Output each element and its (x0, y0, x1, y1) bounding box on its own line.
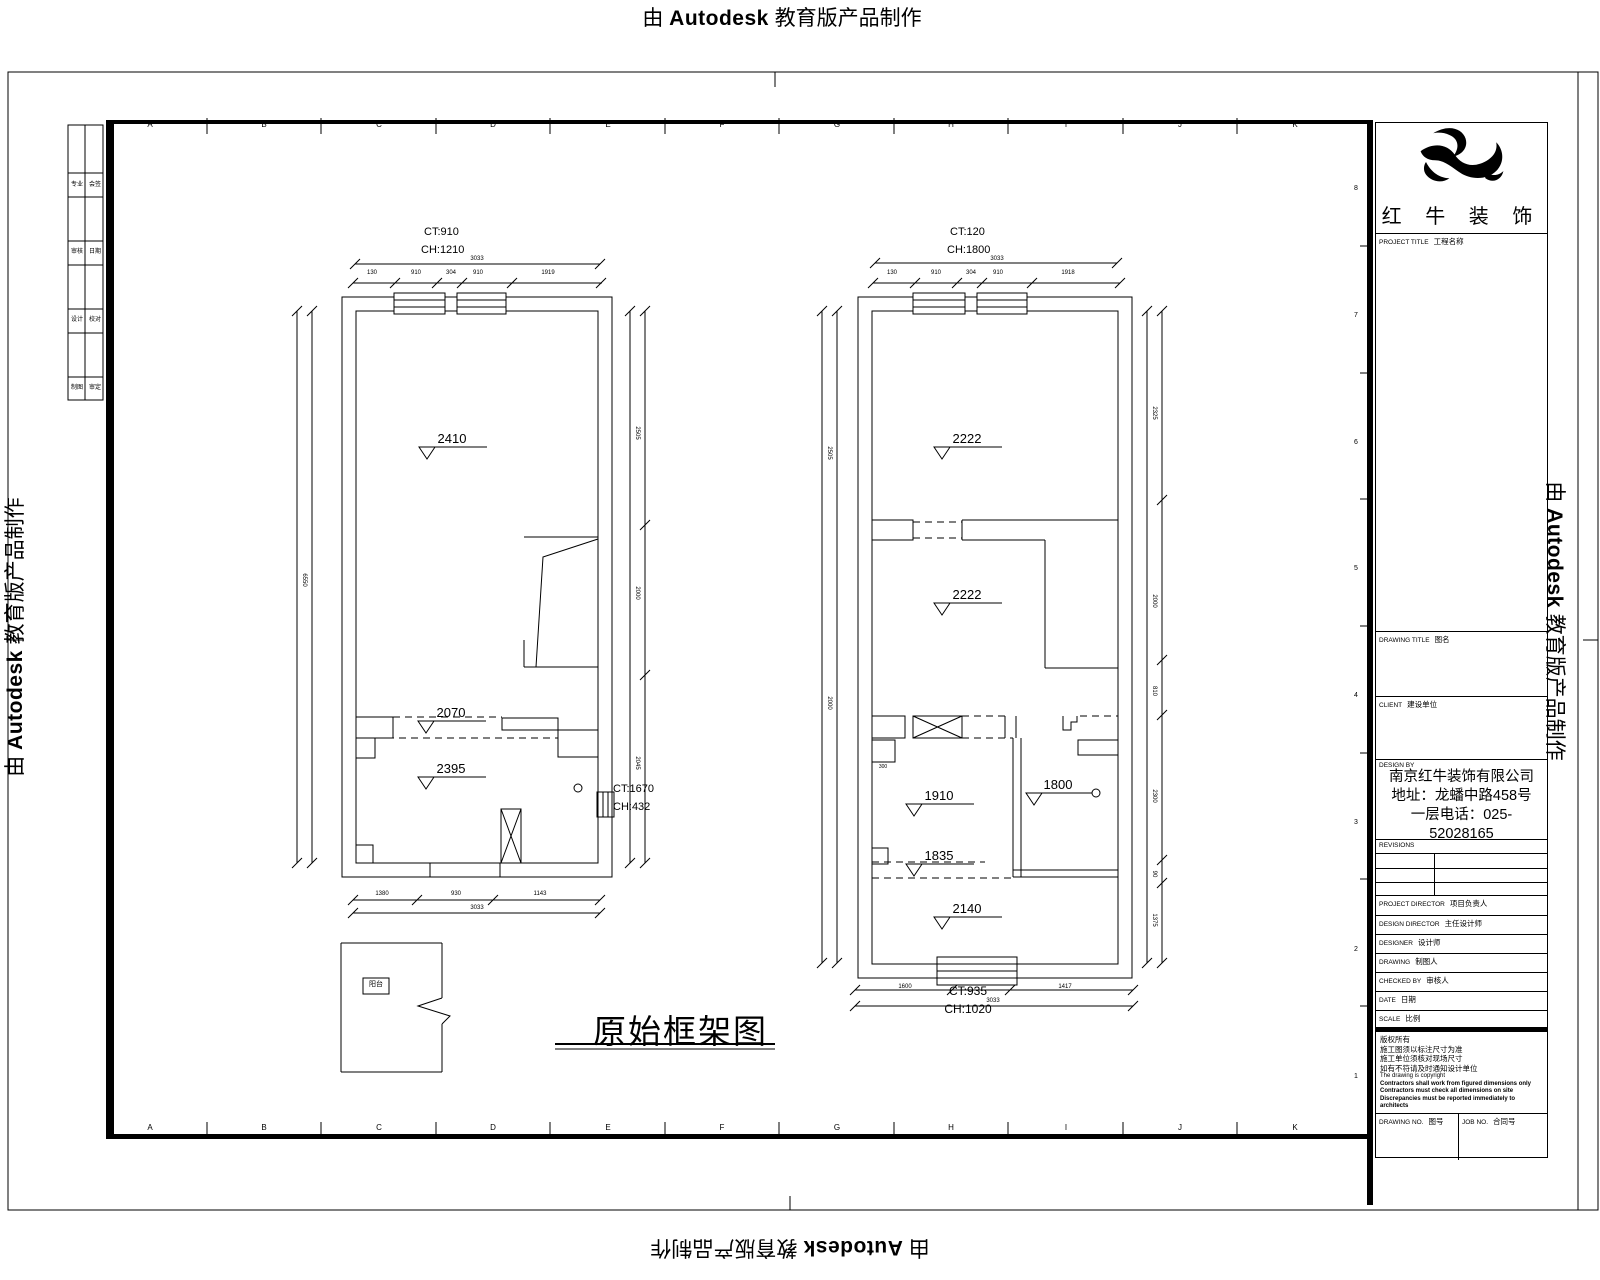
col-f-top: F (720, 121, 725, 129)
dim: 130 (367, 270, 377, 276)
col-a-top: A (147, 121, 152, 129)
row-checked-by: CHECKED BY审核人 (1376, 972, 1547, 991)
dim-total: 3033 (986, 998, 999, 1004)
right-plan (817, 258, 1167, 1011)
col-g-bot: G (834, 1124, 840, 1132)
row-drawing: DRAWING制图人 (1376, 953, 1547, 972)
col-k-top: K (1292, 121, 1297, 129)
elev-2410: 2410 (438, 432, 467, 445)
project-label-cn: 工程名称 (1434, 237, 1464, 246)
strip-cell: 日期 (89, 249, 101, 255)
dim: 1143 (534, 891, 547, 897)
col-b-bot: B (261, 1124, 266, 1132)
dim: 910 (993, 270, 1003, 276)
elev-2222-a: 2222 (953, 432, 982, 445)
elev-2070: 2070 (437, 706, 466, 719)
row-date: DATE日期 (1376, 991, 1547, 1010)
col-h-bot: H (948, 1124, 954, 1132)
sheet-frame (8, 72, 1598, 1210)
dim: 910 (473, 270, 483, 276)
strip-cell: 校对 (89, 317, 101, 323)
project-title-section: PROJECT TITLE工程名称 (1376, 233, 1547, 632)
design-section: DESIGN BY 南京红牛装饰有限公司地址：龙蟠中路458号一层电话：025-… (1376, 759, 1547, 840)
cad-sheet: { "watermark": {"prefix": "由", "brand": … (0, 0, 1600, 1280)
elev-1835: 1835 (925, 849, 954, 862)
col-a-bot: A (147, 1124, 152, 1132)
bull-logo-icon (1402, 126, 1522, 198)
strip-cell: 制图 (71, 385, 83, 391)
strip-cell: 会签 (89, 182, 101, 188)
dim: 910 (411, 270, 421, 276)
row-designer: DESIGNER设计师 (1376, 934, 1547, 953)
drawing-title-section: DRAWING TITLE图名 (1376, 631, 1547, 697)
row-4: 4 (1354, 692, 1358, 699)
dim-v: 2505 (826, 446, 832, 459)
col-h-top: H (948, 121, 954, 129)
dim-total: 3033 (470, 905, 483, 911)
strip-cell: 专业 (71, 182, 83, 188)
row-7: 7 (1354, 312, 1358, 319)
row-6: 6 (1354, 439, 1358, 446)
dim: 930 (451, 891, 461, 897)
dim-v: 2325 (1151, 406, 1157, 419)
strip-cell: 审定 (89, 385, 101, 391)
dim: 1919 (541, 270, 554, 276)
dim-lines-left (297, 264, 645, 913)
client-section: CLIENT建设单位 (1376, 696, 1547, 760)
row-design-director: DESIGN DIRECTOR主任设计师 (1376, 915, 1547, 934)
dim-v: 2300 (1151, 789, 1157, 802)
row-2: 2 (1354, 946, 1358, 953)
revisions-table (1376, 853, 1547, 896)
dim-v: 2000 (634, 586, 640, 599)
elev-2140: 2140 (953, 902, 982, 915)
col-e-top: E (605, 121, 610, 129)
dim-v: 2045 (634, 756, 640, 769)
elev-1800: 1800 (1044, 778, 1073, 791)
col-j-bot: J (1178, 1124, 1182, 1132)
ct-left-top: CT:910 (424, 227, 459, 238)
col-b-top: B (261, 121, 266, 129)
dim-v: 2505 (634, 426, 640, 439)
elev-2222-b: 2222 (953, 588, 982, 601)
ch-left-side: CH:432 (613, 802, 650, 813)
dim-v: 810 (1151, 686, 1157, 696)
col-d-bot: D (490, 1124, 496, 1132)
dim-v: 2000 (1151, 594, 1157, 607)
col-d-top: D (490, 121, 496, 129)
dim-total: 3033 (470, 256, 483, 262)
dim-v: 6550 (301, 573, 307, 586)
ch-left-top: CH:1210 (421, 245, 464, 256)
dim: 910 (931, 270, 941, 276)
col-j-top: J (1178, 121, 1182, 129)
ch-right-bottom: CH:1020 (944, 1003, 991, 1015)
col-e-bot: E (605, 1124, 610, 1132)
ct-left-side: CT:1670 (613, 784, 654, 795)
balcony-label: 阳台 (369, 981, 383, 988)
dim-v: 1375 (1151, 913, 1157, 926)
dim: 1918 (1061, 270, 1074, 276)
signature-rows: PROJECT DIRECTOR项目负责人 DESIGN DIRECTOR主任设… (1376, 895, 1547, 1029)
col-c-top: C (376, 121, 382, 129)
linework-canvas (0, 0, 1600, 1280)
title-block: 红 牛 装 饰 PROJECT TITLE工程名称 DRAWING TITLE图… (1375, 122, 1548, 1158)
row-project-director: PROJECT DIRECTOR项目负责人 (1376, 896, 1547, 915)
ct-right-bottom: CT:935 (949, 985, 987, 997)
dim-v: 2000 (826, 696, 832, 709)
dim-lines-right (822, 263, 1162, 1006)
elev-1910: 1910 (925, 789, 954, 802)
dim: 304 (966, 270, 976, 276)
strip-cell: 设计 (71, 317, 83, 323)
col-f-bot: F (720, 1124, 725, 1132)
col-g-top: G (834, 121, 840, 129)
col-i-bot: I (1065, 1124, 1067, 1132)
flue-shaft (524, 537, 598, 667)
project-label-en: PROJECT TITLE (1379, 239, 1429, 246)
logo-section: 红 牛 装 饰 (1376, 123, 1547, 233)
row-8: 8 (1354, 185, 1358, 192)
ct-right-top: CT:120 (950, 227, 985, 238)
drawing-title: 原始框架图 (593, 1005, 768, 1053)
col-k-bot: K (1292, 1124, 1297, 1132)
drawing-no-cell: DRAWING NO.图号 (1376, 1114, 1459, 1160)
dim-v: 90 (1151, 871, 1157, 878)
left-plan (292, 259, 650, 918)
dim: 1600 (898, 984, 911, 990)
col-i-top: I (1065, 121, 1067, 129)
balcony (341, 943, 450, 1072)
row-5: 5 (1354, 565, 1358, 572)
dim: 1417 (1058, 984, 1071, 990)
col-c-bot: C (376, 1124, 382, 1132)
revision-strip-grid (68, 125, 103, 400)
dim: 300 (879, 765, 887, 770)
row-3: 3 (1354, 819, 1358, 826)
job-no-cell: JOB NO.合同号 (1459, 1114, 1547, 1160)
number-section: DRAWING NO.图号 JOB NO.合同号 (1376, 1113, 1547, 1160)
dim-total: 3033 (990, 256, 1003, 262)
dim: 1380 (375, 891, 388, 897)
company-name: 红 牛 装 饰 (1376, 200, 1547, 229)
strip-cell: 审核 (71, 249, 83, 255)
dim: 130 (887, 270, 897, 276)
ch-right-top: CH:1800 (947, 245, 990, 256)
row-1: 1 (1354, 1073, 1358, 1080)
dim: 304 (446, 270, 456, 276)
company-info: 南京红牛装饰有限公司地址：龙蟠中路458号一层电话：025-52028165 (1387, 768, 1537, 844)
notes-section: 版权所有 施工图须以标注尺寸为准 施工单位须核对现场尺寸 如有不符请及时通知设计… (1376, 1031, 1547, 1120)
elev-2395: 2395 (437, 762, 466, 775)
